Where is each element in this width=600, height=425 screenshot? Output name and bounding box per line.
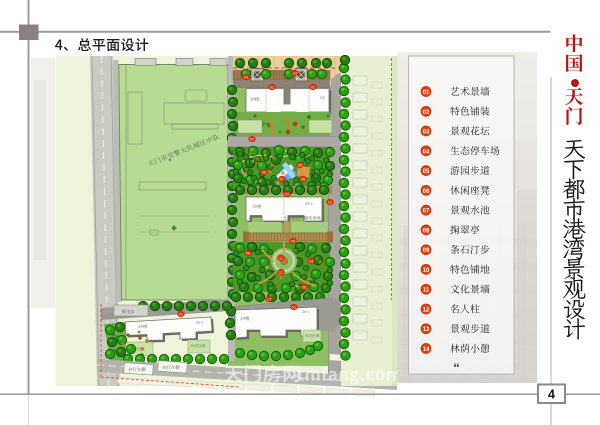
svg-text:02: 02 [270,85,275,90]
svg-text:13: 13 [309,259,314,264]
svg-text:13: 13 [423,327,430,333]
svg-text:03: 03 [423,130,430,136]
svg-text:07: 07 [280,177,285,182]
svg-text:14: 14 [423,347,430,353]
svg-text:04: 04 [423,149,430,155]
svg-text:03: 03 [244,75,249,80]
svg-text:14: 14 [267,297,272,302]
svg-text:02: 02 [423,110,430,116]
svg-text:09: 09 [285,192,290,197]
svg-text:08: 08 [246,251,251,256]
svg-text:10: 10 [328,200,333,205]
svg-text:10: 10 [423,268,430,274]
svg-text:08: 08 [301,177,306,182]
svg-text:01: 01 [179,312,184,317]
svg-text:09: 09 [291,239,296,244]
svg-text:11: 11 [423,288,430,294]
svg-text:12: 12 [423,308,430,314]
svg-text:08: 08 [423,228,430,234]
svg-text:06: 06 [262,170,267,175]
svg-text:05: 05 [298,163,303,168]
svg-text:04: 04 [250,137,255,142]
svg-text:12: 12 [279,270,284,275]
svg-text:01: 01 [292,305,297,310]
svg-text:05: 05 [423,169,430,175]
svg-text:03: 03 [293,71,298,76]
svg-text:02: 02 [311,85,316,90]
svg-text:06: 06 [302,285,307,290]
svg-text:01: 01 [423,90,430,96]
svg-text:4: 4 [548,388,555,402]
svg-text:06: 06 [423,189,430,195]
svg-text:09: 09 [423,248,430,254]
svg-text:07: 07 [423,209,430,215]
